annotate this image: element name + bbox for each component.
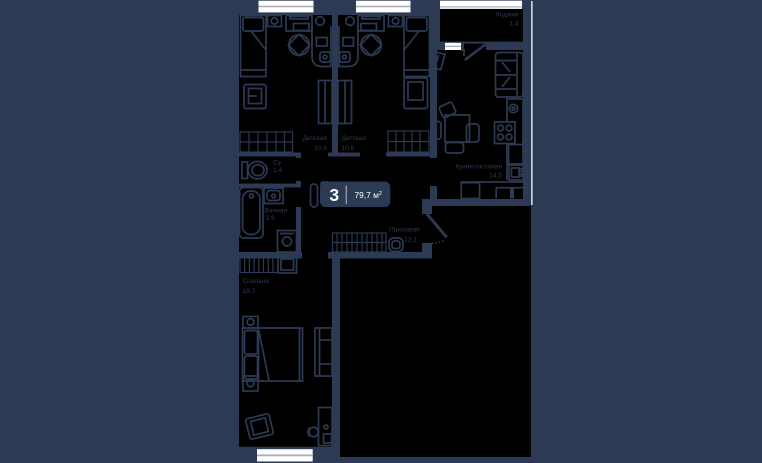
svg-text:Су: Су [273,160,282,167]
svg-text:12,1: 12,1 [404,237,417,244]
svg-text:Кухня-гостиная: Кухня-гостиная [455,164,502,171]
svg-text:10.6: 10.6 [314,145,327,152]
svg-text:1.4: 1.4 [509,21,518,28]
svg-text:Прихожая: Прихожая [389,227,420,234]
svg-text:Детская: Детская [303,135,328,142]
svg-text:Спальня: Спальня [243,278,270,285]
svg-text:79,7 м2: 79,7 м2 [355,190,382,200]
svg-text:10.5: 10.5 [342,145,355,152]
svg-text:19,7: 19,7 [243,288,256,295]
svg-text:Лоджия: Лоджия [495,12,519,19]
svg-text:Детская: Детская [342,135,367,142]
svg-text:3: 3 [329,185,339,205]
svg-text:14,5: 14,5 [489,173,502,180]
svg-text:Ванная: Ванная [265,208,288,215]
svg-text:1.4: 1.4 [273,167,282,174]
svg-text:3.9: 3.9 [266,215,275,222]
